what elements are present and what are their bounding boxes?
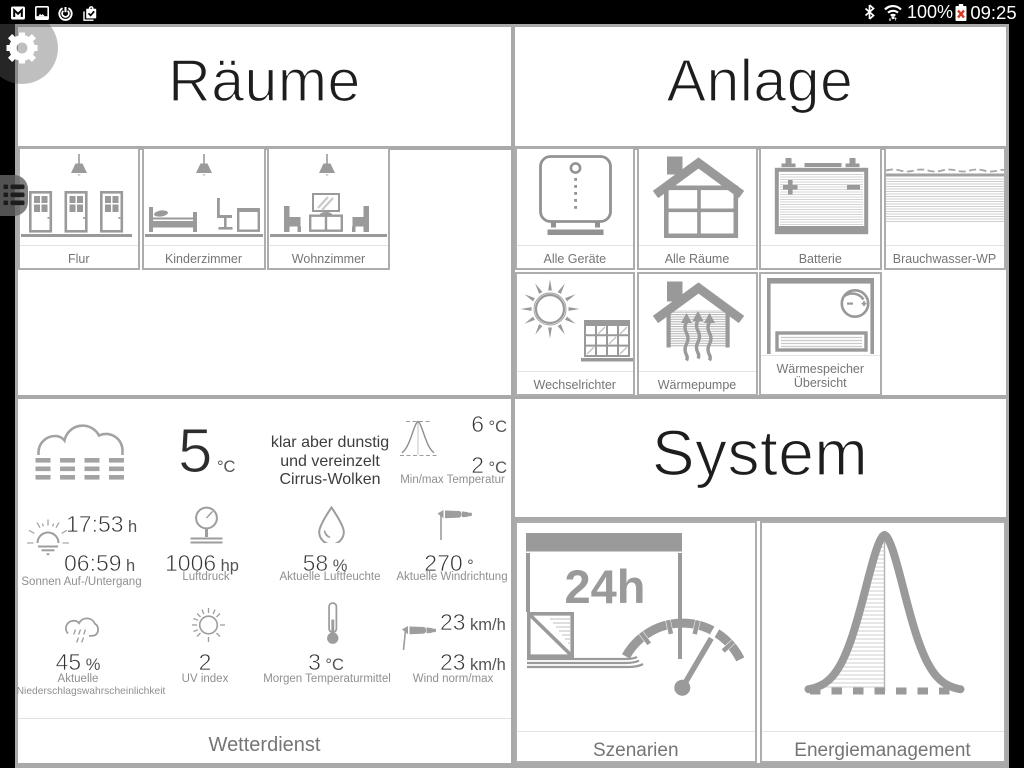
svg-text:24h: 24h xyxy=(564,560,645,613)
